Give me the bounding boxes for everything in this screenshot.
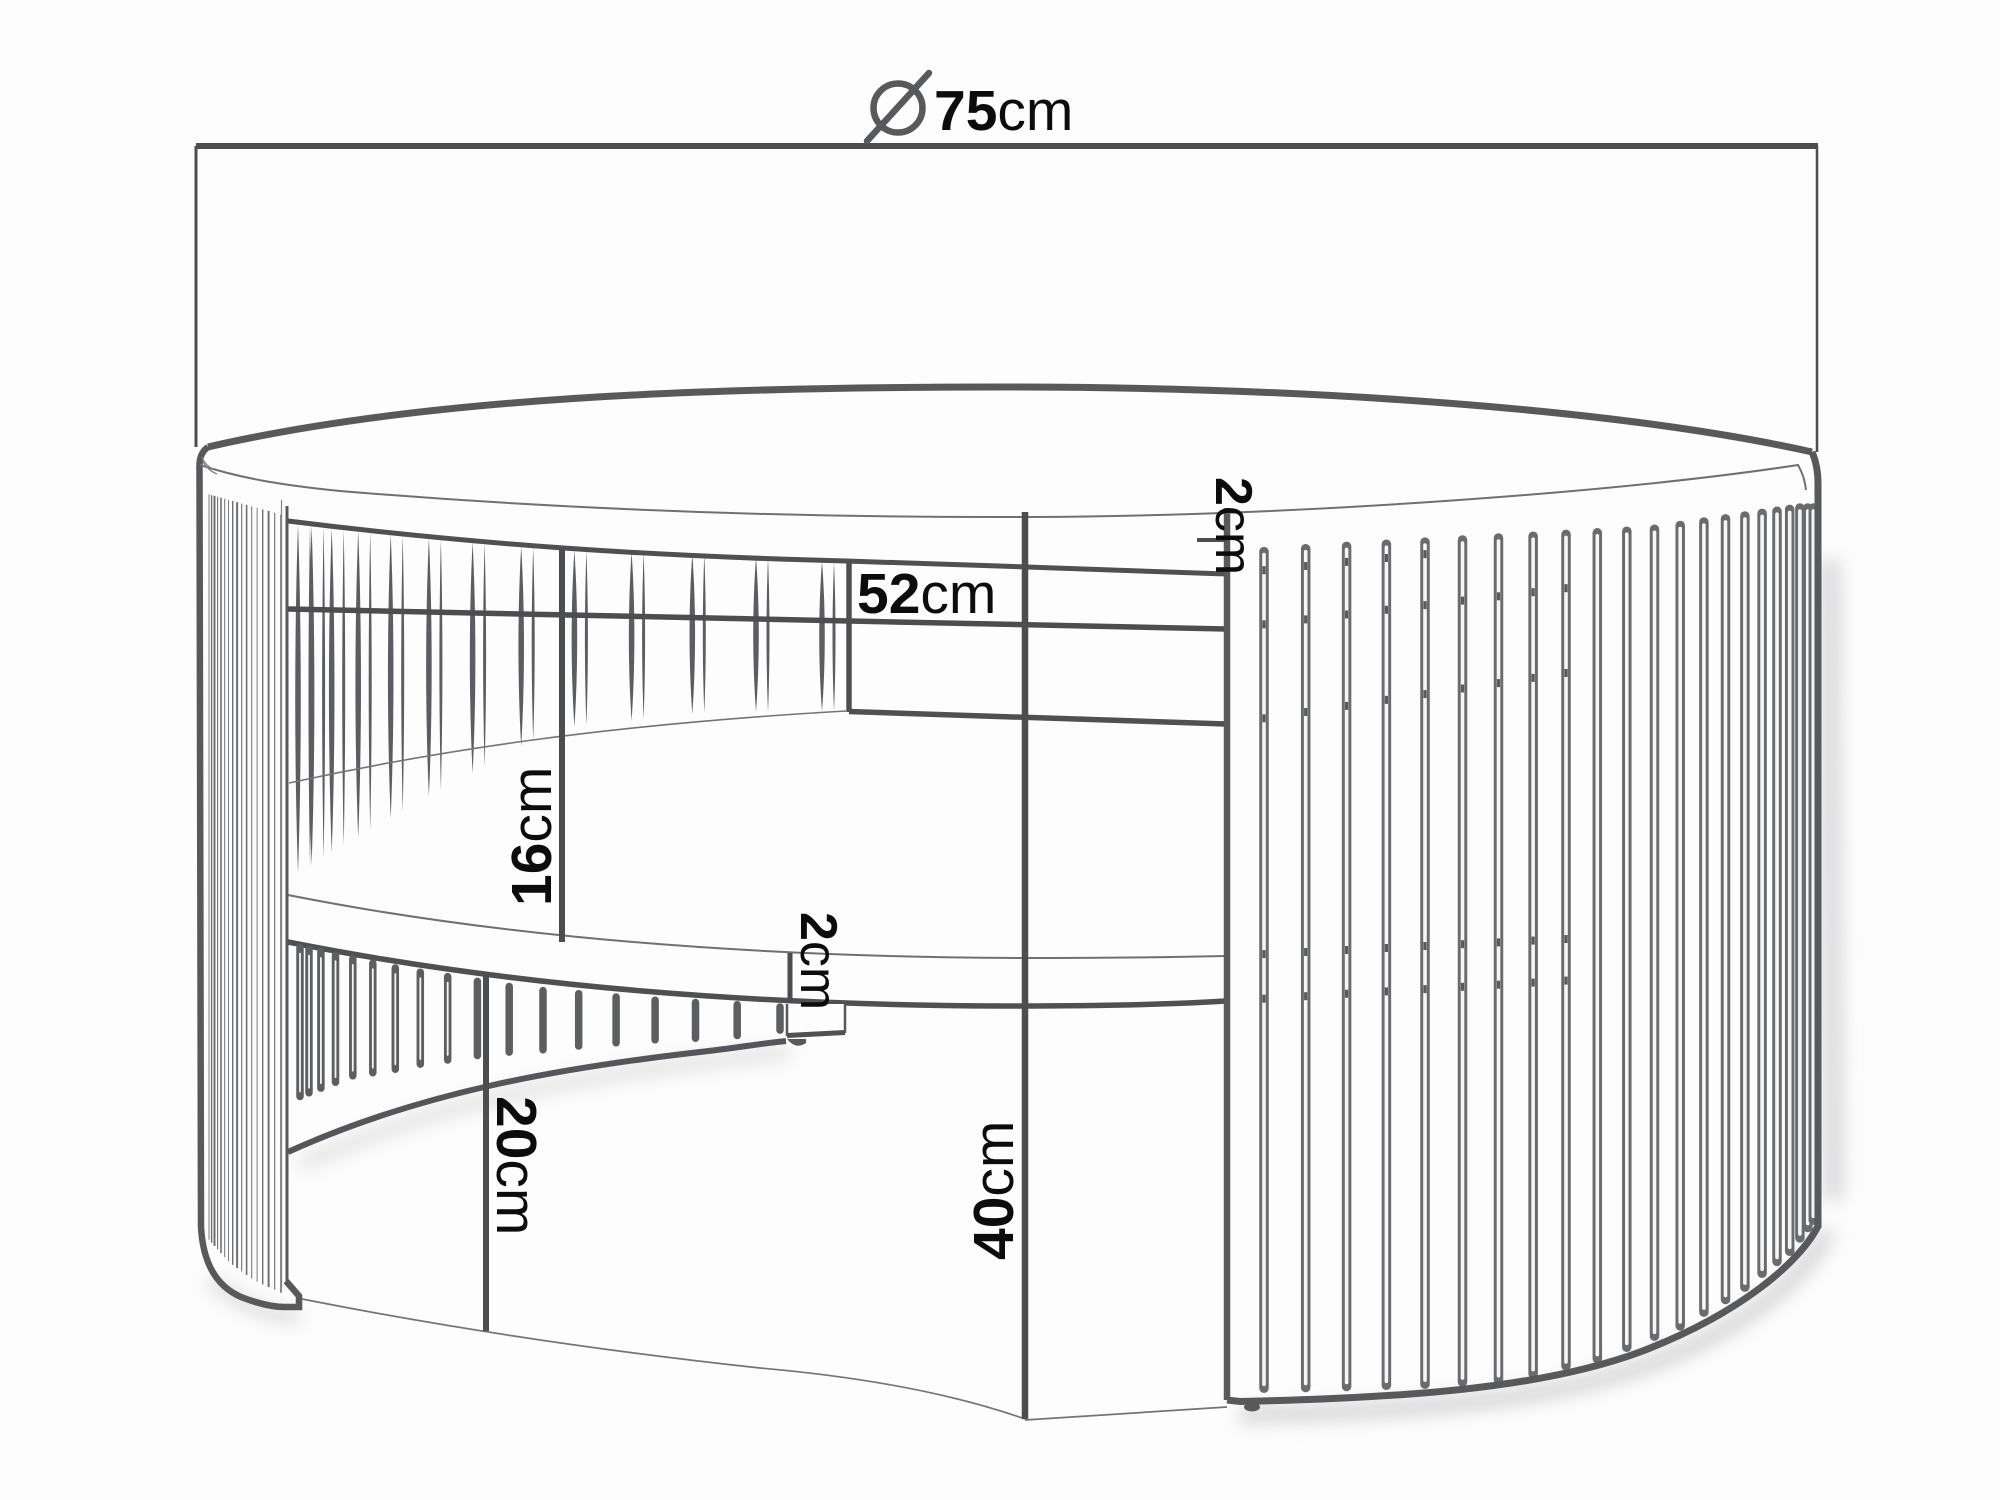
svg-text:2cm: 2cm	[789, 912, 847, 1010]
svg-text:20cm: 20cm	[484, 1096, 548, 1235]
svg-text:52cm: 52cm	[857, 562, 996, 626]
svg-text:75cm: 75cm	[934, 79, 1073, 143]
svg-text:40cm: 40cm	[962, 1121, 1026, 1260]
svg-text:16cm: 16cm	[500, 767, 564, 906]
svg-text:2cm: 2cm	[1204, 477, 1262, 575]
